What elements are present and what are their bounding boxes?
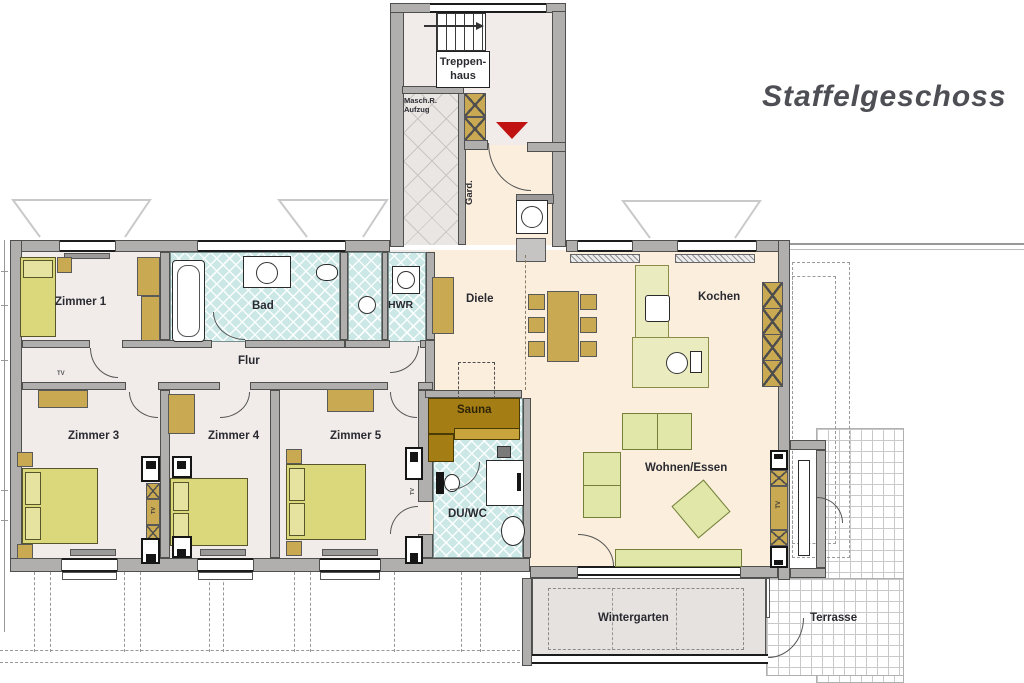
- window-sill: [320, 572, 380, 580]
- wall: [522, 578, 532, 666]
- dimension-tick: [1, 520, 8, 521]
- terrasse-divider: [766, 578, 770, 618]
- entry-cabinet: [464, 117, 486, 141]
- radiator: [322, 549, 378, 556]
- shower-drain: [497, 446, 511, 458]
- zimmer5-label: Zimmer 5: [330, 430, 381, 444]
- roof-edge-line: [790, 249, 1024, 250]
- dresser: [405, 447, 423, 480]
- gard-label: Gard.: [464, 155, 475, 205]
- dimension-line: [4, 240, 5, 632]
- sofa-cushion-divider: [657, 414, 658, 449]
- tv-cabinet: [770, 470, 788, 486]
- tv-label: TV: [410, 488, 417, 495]
- wall: [340, 252, 348, 340]
- window-sill: [62, 572, 117, 580]
- sideboard: [432, 277, 454, 334]
- lower-floor-outline: [34, 572, 35, 652]
- toilet-tank: [436, 472, 444, 494]
- bad-window: [198, 240, 345, 252]
- washbasin: [256, 262, 278, 284]
- wall: [22, 340, 90, 348]
- dresser: [405, 536, 423, 564]
- stairs-arrow-head: [476, 22, 484, 30]
- dining-chair: [580, 317, 597, 333]
- washing-machine-drum: [521, 206, 543, 228]
- radiator: [675, 254, 755, 263]
- toilet: [316, 264, 338, 281]
- wall: [382, 252, 388, 340]
- wardrobe: [38, 390, 88, 408]
- nightstand: [17, 544, 33, 559]
- wall: [552, 11, 566, 247]
- dining-table: [547, 291, 579, 362]
- stairwell-window: [430, 3, 548, 13]
- zimmer1-window: [60, 240, 115, 252]
- sofa-cushion-divider: [584, 485, 620, 486]
- zimmer1-label: Zimmer 1: [55, 296, 106, 310]
- lower-floor-outline: [294, 572, 295, 652]
- stove: [666, 352, 688, 374]
- wall: [22, 382, 126, 390]
- wall: [790, 568, 826, 578]
- tv-label: TV: [776, 501, 783, 509]
- entrance-marker-icon: [496, 122, 528, 139]
- lower-floor-outline: [140, 572, 141, 652]
- pillow: [289, 468, 305, 501]
- tall-cabinet: [762, 282, 783, 309]
- lower-floor-outline: [0, 650, 520, 651]
- media-unit: [770, 450, 788, 470]
- lower-floor-outline: [223, 572, 224, 652]
- dimension-tick: [1, 360, 8, 361]
- room-divider-dashed: [525, 255, 526, 390]
- wohnen-glass-front: [578, 566, 740, 576]
- dashed-reserve-area: [458, 362, 495, 399]
- radiator: [200, 549, 246, 556]
- wall: [390, 3, 404, 247]
- wall: [115, 240, 198, 252]
- wintergarten-dashed-divider: [676, 588, 677, 650]
- zimmer4-label: Zimmer 4: [208, 430, 259, 444]
- treppenhaus-label-box: Treppen- haus: [436, 51, 490, 88]
- entry-cabinet: [464, 93, 486, 117]
- lower-floor-outline: [480, 572, 481, 652]
- wintergarten-glass-front: [532, 654, 768, 664]
- hwr-label: HWR: [388, 299, 413, 312]
- tall-cabinet: [762, 308, 783, 335]
- lower-floor-outline: [209, 572, 210, 652]
- wall: [566, 240, 578, 252]
- kochen-label: Kochen: [698, 291, 740, 305]
- wall: [158, 382, 220, 390]
- sofa: [622, 413, 692, 450]
- wall: [160, 252, 170, 340]
- wall: [530, 566, 578, 578]
- dimension-tick: [1, 271, 8, 272]
- wardrobe: [168, 394, 195, 434]
- dresser: [141, 538, 160, 564]
- machine-room-floor: [402, 93, 462, 245]
- radiator: [570, 254, 640, 263]
- tv-label: TV: [151, 507, 158, 514]
- wall: [380, 558, 530, 572]
- maschr-label: Masch.R. Aufzug: [404, 96, 437, 114]
- page-title: Staffelgeschoss: [762, 80, 1007, 114]
- washing-machine-drum: [397, 271, 415, 289]
- wall: [345, 240, 390, 252]
- sofa: [583, 452, 621, 518]
- dining-chair: [528, 294, 545, 310]
- bathtub: [172, 260, 205, 342]
- nightstand: [57, 257, 72, 273]
- zimmer4-window: [198, 558, 253, 572]
- zimmer3-label: Zimmer 3: [68, 430, 119, 444]
- dining-chair: [580, 294, 597, 310]
- bed: [20, 257, 56, 337]
- pillow: [25, 507, 41, 540]
- appliance: [516, 238, 546, 262]
- lower-floor-outline: [310, 572, 311, 652]
- wall: [527, 142, 566, 152]
- dresser: [172, 456, 192, 478]
- wall: [245, 340, 345, 348]
- balcony-door: [798, 460, 810, 556]
- pillow: [173, 482, 189, 511]
- bad-label: Bad: [252, 300, 274, 314]
- kochen-window: [578, 240, 632, 252]
- dresser: [141, 456, 160, 482]
- tv-label: TV: [57, 371, 65, 378]
- terrasse-label: Terrasse: [810, 612, 857, 626]
- wardrobe: [141, 296, 160, 341]
- shower-tray: [486, 460, 524, 506]
- double-bed: [286, 464, 366, 540]
- stairs-direction-arrow: [424, 25, 476, 27]
- floor-plan: Treppen- haus Masch.R. Aufzug Gard. Diel…: [0, 0, 1024, 683]
- treppenhaus-label: Treppen- haus: [440, 56, 486, 82]
- duwc-label: DU/WC: [448, 508, 487, 522]
- sideboard-bench: [615, 549, 742, 567]
- media-unit: [770, 546, 788, 568]
- nightstand: [286, 541, 302, 556]
- diele-label: Diele: [466, 293, 494, 307]
- wall: [632, 240, 678, 252]
- kitchen-appliance: [690, 351, 702, 373]
- pillow: [23, 260, 53, 278]
- window-sill: [198, 572, 253, 580]
- wardrobe: [137, 257, 160, 296]
- pillow: [289, 503, 305, 536]
- zimmer5-window: [320, 558, 380, 572]
- bathtub-basin: [177, 265, 200, 337]
- kitchen-sink: [645, 295, 670, 322]
- pillow: [25, 472, 41, 505]
- tall-cabinet: [762, 334, 783, 361]
- flur-label: Flur: [238, 355, 260, 369]
- wall: [390, 3, 434, 13]
- wall-cabinet: TV: [146, 499, 160, 525]
- dining-chair: [580, 341, 597, 357]
- dining-chair: [528, 341, 545, 357]
- lower-floor-outline: [461, 572, 462, 652]
- radiator: [70, 549, 116, 556]
- shower-fitting: [517, 473, 521, 491]
- washbasin: [501, 516, 525, 546]
- tv-cabinet: [770, 530, 788, 546]
- wall: [345, 340, 390, 348]
- sauna-bench-inner: [454, 428, 520, 440]
- dining-chair: [528, 317, 545, 333]
- wall: [253, 558, 320, 572]
- kochen-window: [678, 240, 756, 252]
- lower-floor-outline: [50, 572, 51, 652]
- nightstand: [286, 449, 302, 464]
- lower-floor-outline: [394, 572, 395, 652]
- tall-cabinet: [762, 360, 783, 387]
- lower-floor-outline: [124, 572, 125, 652]
- dimension-tick: [1, 490, 8, 491]
- sauna-label: Sauna: [457, 404, 492, 418]
- wall: [270, 390, 280, 558]
- zimmer3-window: [62, 558, 117, 572]
- wintergarten-label: Wintergarten: [598, 612, 669, 626]
- wardrobe: [327, 389, 374, 412]
- wall: [10, 558, 62, 572]
- dresser: [172, 536, 192, 558]
- nightstand: [17, 452, 33, 467]
- dimension-tick: [1, 305, 8, 306]
- wohnen-label: Wohnen/Essen: [645, 462, 727, 476]
- lower-floor-outline: [0, 662, 530, 663]
- sauna-bench: [428, 434, 454, 462]
- wall: [464, 140, 488, 150]
- wall: [418, 382, 433, 390]
- tv-cabinet: TV: [770, 486, 788, 530]
- wc-basin: [358, 296, 376, 314]
- wall: [790, 440, 826, 450]
- double-bed: [22, 468, 98, 544]
- stairs: [436, 13, 486, 51]
- roof-edge-line: [790, 243, 1024, 245]
- wall-cabinet: [146, 483, 160, 499]
